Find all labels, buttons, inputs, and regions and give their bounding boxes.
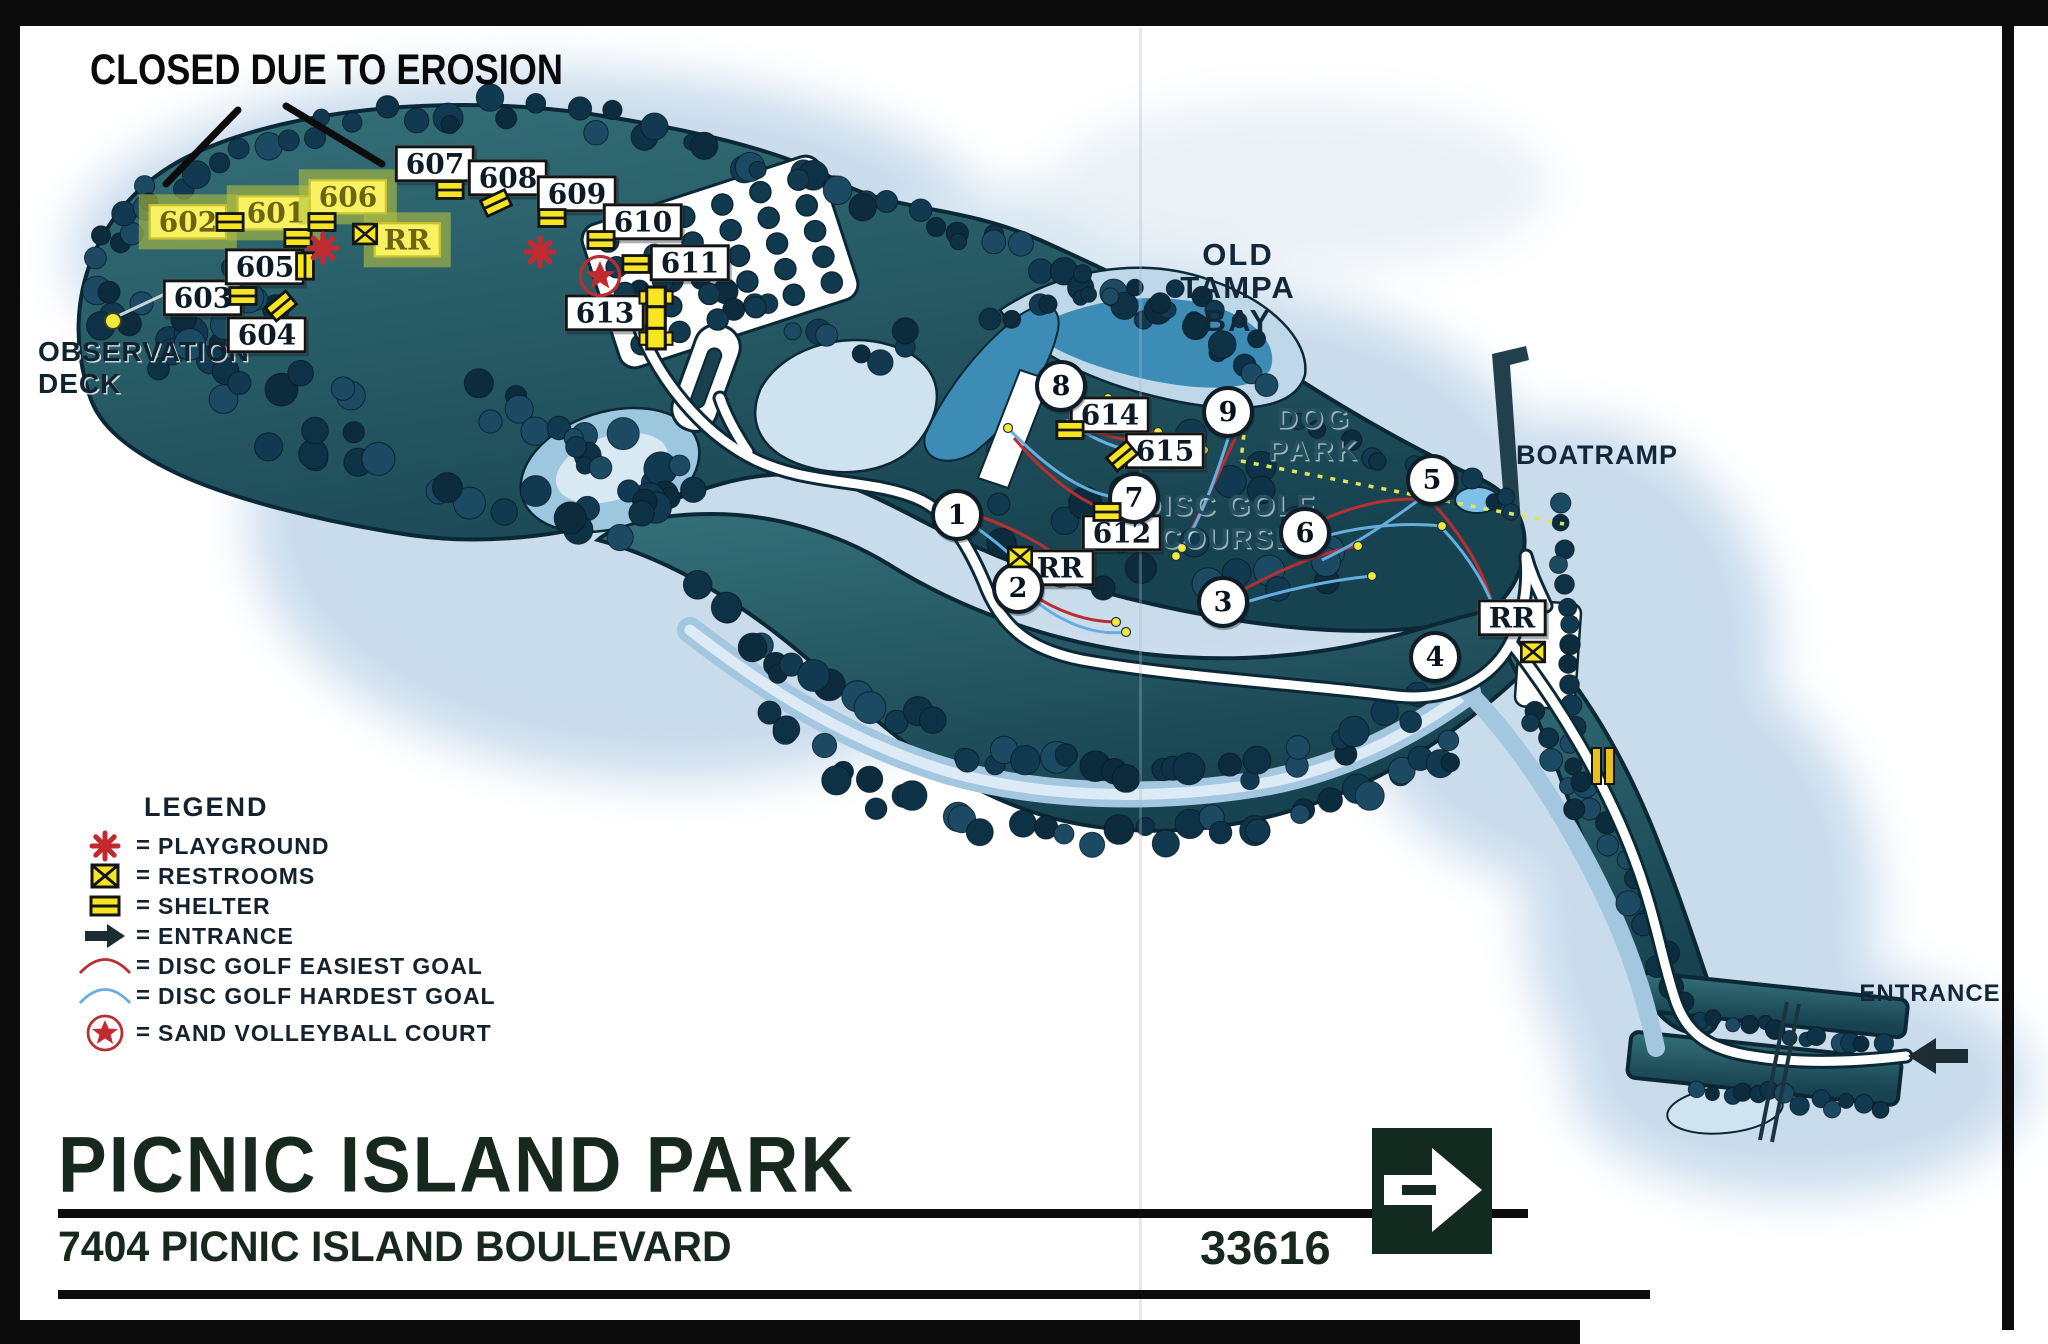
- shelter-icon: [215, 212, 245, 233]
- equals-sign: =: [136, 832, 158, 860]
- scan-border: [0, 0, 2048, 26]
- equals-sign: =: [136, 892, 158, 920]
- legend-row-playground: = PLAYGROUND: [74, 831, 514, 861]
- shelter-icon: [307, 212, 337, 233]
- shelter-icon: [228, 286, 258, 307]
- legend-label: ENTRANCE: [158, 923, 294, 950]
- entrance-icon: [74, 922, 136, 950]
- legend-label: PLAYGROUND: [158, 833, 329, 860]
- legend-row-restrooms: = RESTROOMS: [74, 861, 514, 891]
- legend-label: RESTROOMS: [158, 863, 315, 890]
- restrooms-icon: [1520, 640, 1547, 664]
- legend-row-entrance: = ENTRANCE: [74, 921, 514, 951]
- restrooms-icon: [1007, 545, 1034, 569]
- disc-golf-hole-1: 1: [931, 489, 983, 541]
- shelter-label-607: 607: [395, 145, 475, 182]
- restrooms-icon: [352, 222, 379, 246]
- divider-rule: [58, 1209, 1528, 1218]
- shelter-icon: [586, 230, 616, 251]
- legend-title: LEGEND: [144, 792, 514, 823]
- disc-golf-hole-2: 2: [992, 562, 1044, 614]
- disc-golf-hardest-icon: [74, 986, 136, 1006]
- shelter-label-606: 606: [309, 179, 387, 214]
- disc-golf-easiest-icon: [74, 956, 136, 976]
- divider-rule: [58, 1290, 1650, 1299]
- page-title: PICNIC ISLAND PARK: [58, 1120, 855, 1210]
- disc-golf-hole-6: 6: [1279, 507, 1331, 559]
- scan-border: [0, 1320, 1580, 1344]
- shelter-icon: [1092, 502, 1122, 523]
- playground-icon: [74, 830, 136, 862]
- shelter-icon: [74, 895, 136, 917]
- shelter-icon: [621, 254, 651, 275]
- legend-row-shelter: = SHELTER: [74, 891, 514, 921]
- legend-label: DISC GOLF HARDEST GOAL: [158, 983, 496, 1010]
- legend-label: SAND VOLLEYBALL COURT: [158, 1020, 492, 1047]
- arrow-right-icon: [1372, 1128, 1492, 1254]
- equals-sign: =: [136, 922, 158, 950]
- disc-golf-hole-3: 3: [1197, 576, 1249, 628]
- legend-row-disc-golf-easiest: = DISC GOLF EASIEST GOAL: [74, 951, 514, 981]
- legend-row-sand-volleyball: = SAND VOLLEYBALL COURT: [74, 1011, 514, 1055]
- disc-golf-hole-8: 8: [1035, 360, 1087, 412]
- shelter-label-601: 601: [237, 195, 315, 230]
- equals-sign: =: [136, 982, 158, 1010]
- shelter-icon: [537, 208, 567, 229]
- shelter-label-605: 605: [225, 248, 305, 285]
- equals-sign: =: [136, 952, 158, 980]
- restrooms-icon: [74, 863, 136, 889]
- shelter-label-604: 604: [227, 316, 307, 353]
- park-map-page: CLOSED DUE TO EROSION OLD TAMPA BAY DOG …: [0, 0, 2048, 1344]
- park-address: 7404 PICNIC ISLAND BOULEVARD: [58, 1222, 732, 1271]
- playground-icon: [306, 231, 340, 265]
- restroom-label: RR: [1478, 599, 1547, 636]
- shelter-icon: [1055, 420, 1085, 441]
- legend-label: SHELTER: [158, 893, 271, 920]
- legend-row-disc-golf-hardest: = DISC GOLF HARDEST GOAL: [74, 981, 514, 1011]
- scan-border: [0, 0, 20, 1344]
- legend: LEGEND = PLAYGROUND = RESTROOMS = SHELTE…: [74, 792, 514, 1055]
- shelter-label-611: 611: [650, 244, 730, 281]
- equals-sign: =: [136, 1019, 158, 1047]
- equals-sign: =: [136, 862, 158, 890]
- parks-arrow-logo: [1372, 1128, 1492, 1254]
- sand-volleyball-icon: [577, 253, 623, 299]
- shelter-label-613: 613: [565, 294, 645, 331]
- restroom-label: RR: [374, 222, 441, 257]
- scan-border: [2002, 0, 2014, 1330]
- disc-golf-hole-5: 5: [1406, 454, 1458, 506]
- shelter-icon: [435, 180, 465, 201]
- shelter-pair-icon: [1590, 746, 1616, 786]
- disc-golf-hole-4: 4: [1409, 631, 1461, 683]
- playground-icon: [523, 235, 557, 269]
- sand-volleyball-icon: [74, 1013, 136, 1053]
- legend-label: DISC GOLF EASIEST GOAL: [158, 953, 483, 980]
- park-zip-code: 33616: [1200, 1220, 1331, 1275]
- disc-golf-hole-9: 9: [1202, 386, 1254, 438]
- shelter-big-icon: [638, 285, 674, 351]
